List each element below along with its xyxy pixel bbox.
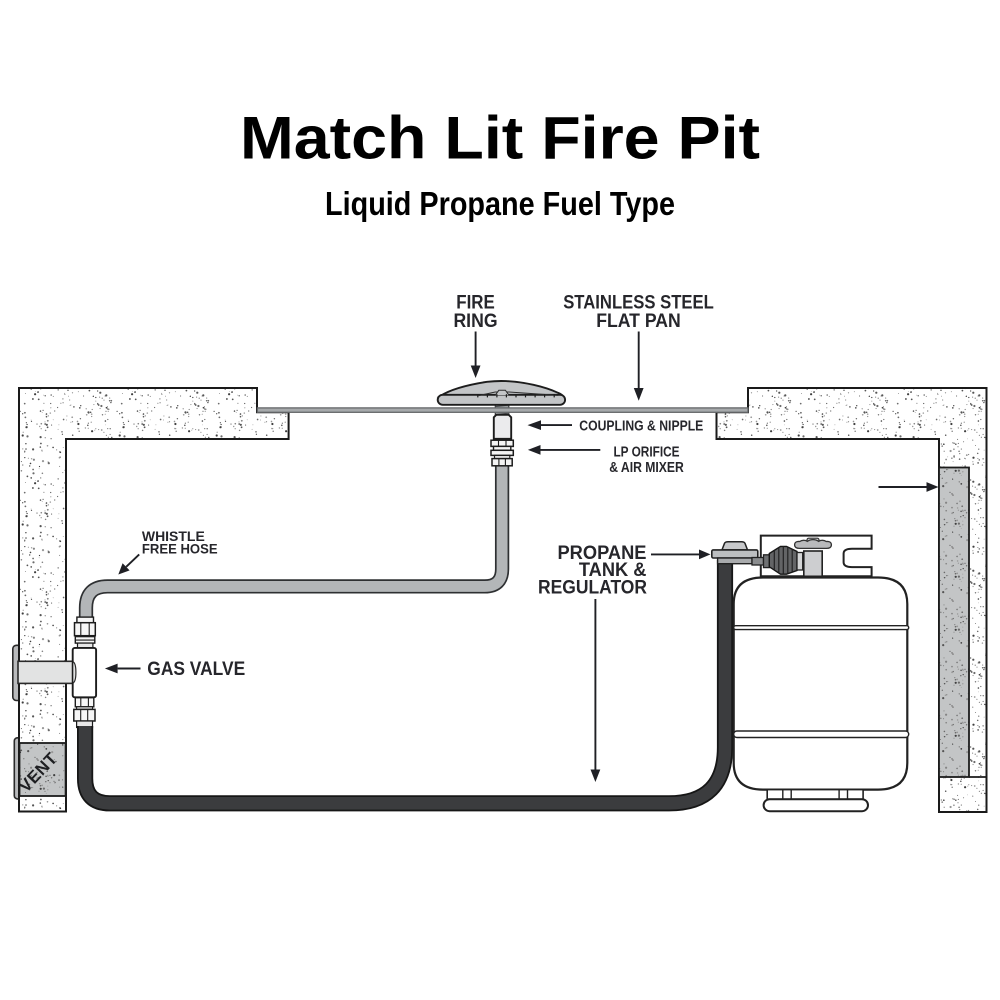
svg-text:& AIR MIXER: & AIR MIXER	[609, 460, 684, 476]
svg-text:GAS VALVE: GAS VALVE	[147, 659, 245, 680]
svg-text:COUPLING & NIPPLE: COUPLING & NIPPLE	[579, 419, 703, 435]
svg-text:STAINLESS STEEL: STAINLESS STEEL	[563, 292, 714, 313]
svg-text:Liquid Propane Fuel Type: Liquid Propane Fuel Type	[325, 185, 675, 222]
svg-text:FIRE: FIRE	[456, 292, 495, 313]
svg-text:REGULATOR: REGULATOR	[538, 577, 647, 598]
svg-text:Match Lit Fire Pit: Match Lit Fire Pit	[240, 105, 760, 172]
svg-text:LP ORIFICE: LP ORIFICE	[613, 445, 679, 461]
svg-text:FLAT PAN: FLAT PAN	[596, 311, 681, 332]
svg-text:RING: RING	[453, 311, 497, 332]
svg-text:FREE HOSE: FREE HOSE	[142, 541, 218, 557]
